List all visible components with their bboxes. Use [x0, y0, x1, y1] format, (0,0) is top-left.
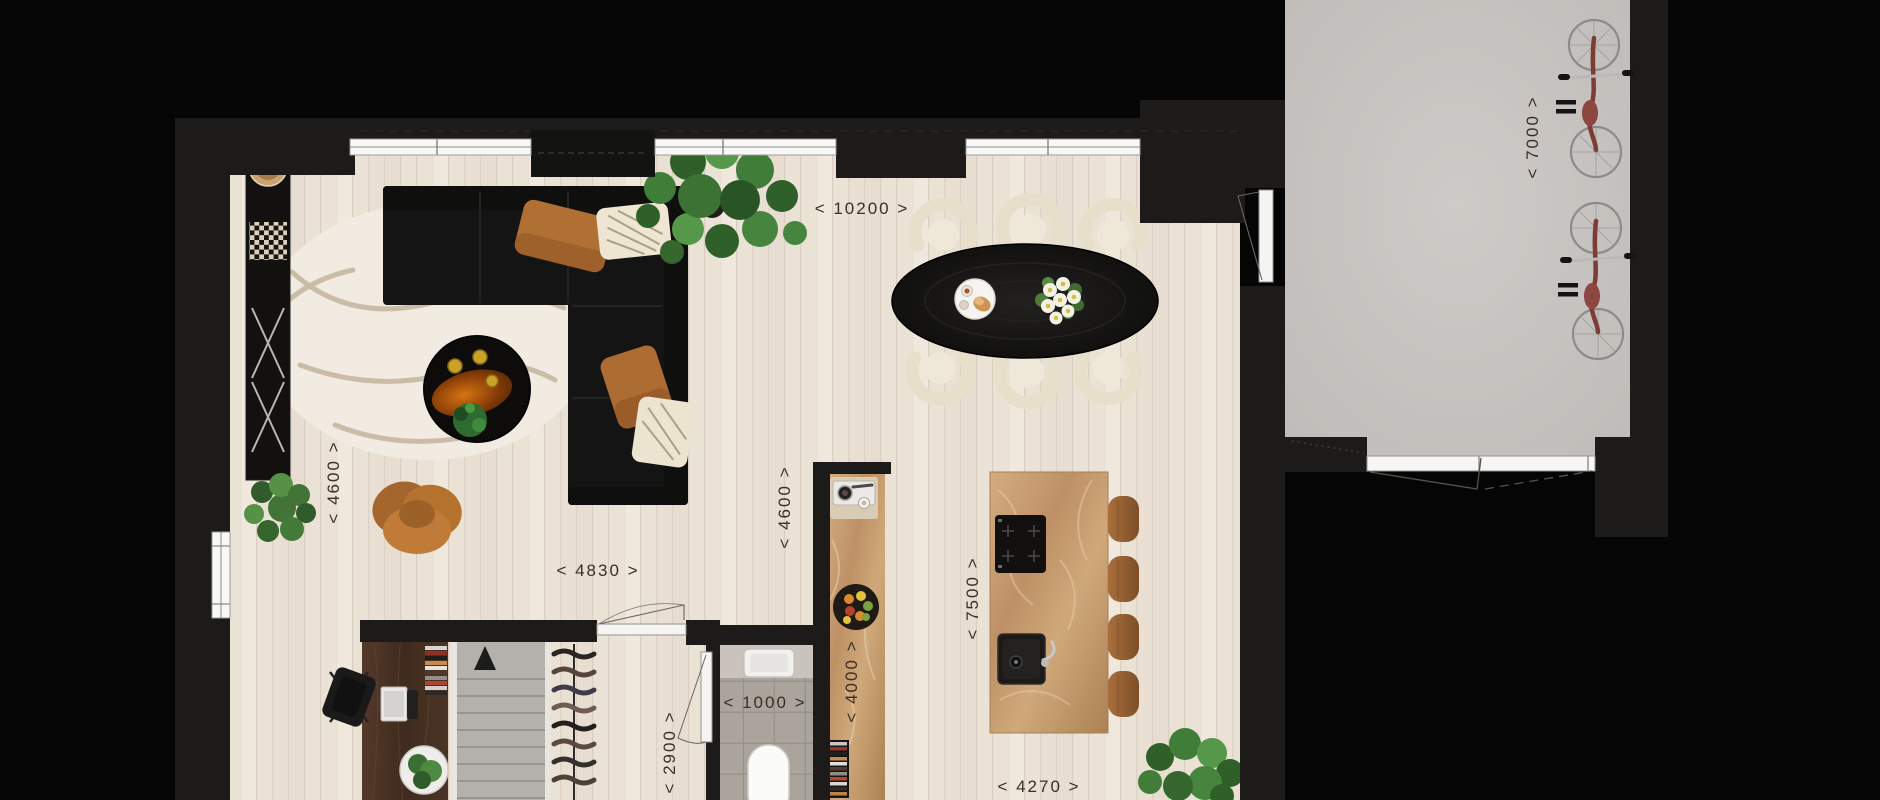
desk-plant — [400, 746, 448, 794]
breakfast-plate — [955, 279, 995, 319]
dim-kitchen-width: < 4270 > — [997, 777, 1080, 796]
bar-stool — [1108, 671, 1139, 717]
dim-wc-width: < 1000 > — [723, 693, 806, 712]
dim-garage-depth: < 7000 > — [1523, 95, 1542, 178]
wall-bathroom-top — [718, 625, 824, 645]
window-top-3 — [966, 139, 1140, 155]
wall-study — [360, 620, 597, 642]
garage-room — [1245, 0, 1668, 537]
dim-counter-run: < 4000 > — [842, 639, 861, 722]
wall-left — [175, 145, 230, 800]
fruit-bowl — [833, 584, 879, 630]
espresso-machine — [830, 477, 878, 519]
dim-kitchen-depth: < 7500 > — [963, 556, 982, 639]
cushion-palm — [631, 395, 696, 468]
bathroom — [720, 645, 813, 800]
coffee-table — [424, 336, 530, 442]
kitchen-island — [990, 472, 1108, 733]
table-plant — [453, 403, 487, 437]
kitchen-sink — [998, 634, 1054, 684]
wall-divider-upper — [1240, 100, 1285, 188]
dim-living-depth: < 4600 > — [324, 440, 343, 523]
wall-divider-lower — [1240, 286, 1285, 800]
wall-kitchen-top — [813, 462, 891, 474]
induction-hob — [995, 515, 1046, 573]
window-top-1 — [350, 139, 531, 155]
wall-top-pier — [836, 118, 966, 178]
bar-stool — [1108, 614, 1139, 660]
desk — [362, 642, 448, 800]
dim-living-width: < 10200 > — [815, 199, 910, 218]
sideboard — [246, 145, 290, 480]
garage-right-wall — [1630, 0, 1668, 472]
wall-top-right-corner — [1140, 100, 1245, 223]
wall-counter — [824, 474, 885, 800]
toilet — [748, 745, 789, 800]
bar-stool — [1108, 556, 1139, 602]
wall-study-pier — [686, 620, 720, 645]
dim-storage-depth: < 2900 > — [660, 710, 679, 793]
floor-plan-page: < 10200 > < 4600 > < 4830 > < 4600 > < 1… — [0, 0, 1880, 800]
dim-hall-depth: < 4600 > — [775, 465, 794, 548]
wall-kitchen — [813, 462, 830, 800]
dining-table — [892, 244, 1158, 358]
floor-plan-svg: < 10200 > < 4600 > < 4830 > < 4600 > < 1… — [0, 0, 1880, 800]
laptop — [381, 687, 418, 721]
tv-panel — [531, 130, 655, 177]
chessboard — [249, 222, 287, 260]
bar-stool — [1108, 496, 1139, 542]
dim-lounge-width: < 4830 > — [556, 561, 639, 580]
staircase — [452, 642, 550, 800]
window-left — [212, 532, 230, 618]
window-top-2 — [655, 139, 836, 155]
garage-corner-wall — [1595, 437, 1668, 537]
